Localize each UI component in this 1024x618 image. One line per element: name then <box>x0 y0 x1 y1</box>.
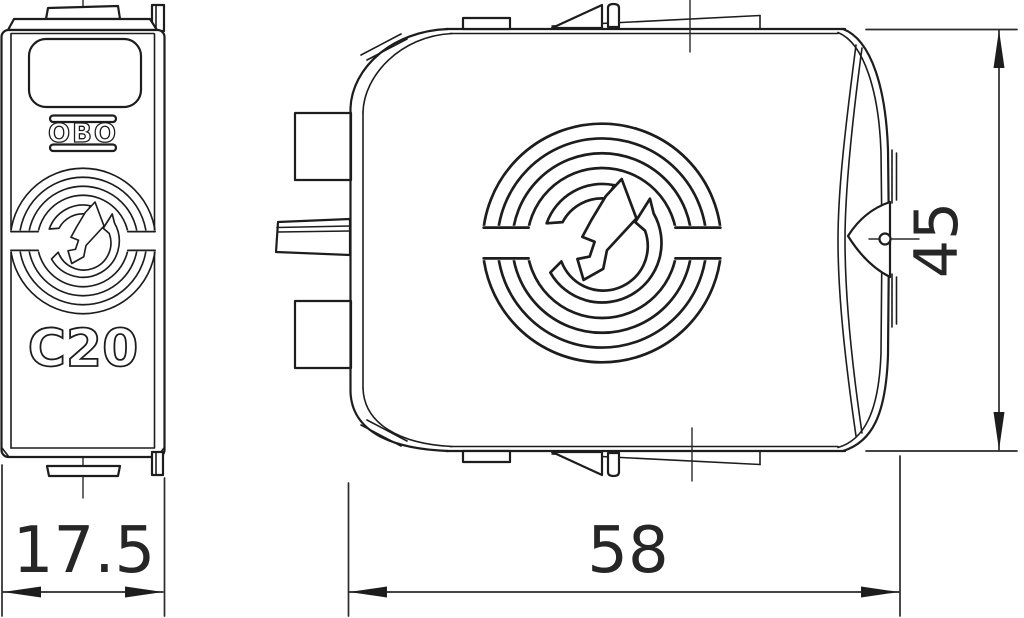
type-marking-text: C20 <box>28 319 139 379</box>
surge-arrester-emblem-side <box>474 124 730 363</box>
brand-logo: OBO <box>48 116 118 152</box>
dim-arrow-left <box>3 587 41 598</box>
front-top-cap <box>8 19 157 30</box>
dim-height-value: 45 <box>902 202 972 278</box>
latch-hole <box>880 234 891 245</box>
dim-arrow-right <box>861 587 899 598</box>
dim-side-width-value: 58 <box>587 514 668 588</box>
pin-top <box>295 113 351 180</box>
technical-drawing-page: OBO C20 <box>0 0 1024 618</box>
bottom-hook-clip <box>608 453 619 476</box>
top-hook-clip <box>608 4 619 27</box>
dim-arrow-left <box>349 587 387 598</box>
dim-arrow-top <box>994 30 1005 68</box>
front-top-tab <box>46 6 120 19</box>
pin-center <box>276 219 350 255</box>
front-bottom-tab <box>47 466 120 476</box>
dim-arrow-bottom <box>994 412 1005 450</box>
top-ramp-clip <box>552 5 602 28</box>
bottom-tab <box>463 451 510 462</box>
front-bottom-foot <box>152 452 163 475</box>
side-view <box>276 0 919 481</box>
dim-arrow-right <box>125 587 163 598</box>
top-tab <box>463 18 510 29</box>
pin-bottom <box>295 301 351 368</box>
dimension-side-width: 58 <box>349 456 901 616</box>
dim-front-width-value: 17.5 <box>13 514 156 588</box>
inspection-window <box>29 39 141 107</box>
bottom-ramp-clip <box>552 452 602 475</box>
technical-drawing: OBO C20 <box>0 0 1024 618</box>
front-view: OBO C20 <box>2 0 165 498</box>
